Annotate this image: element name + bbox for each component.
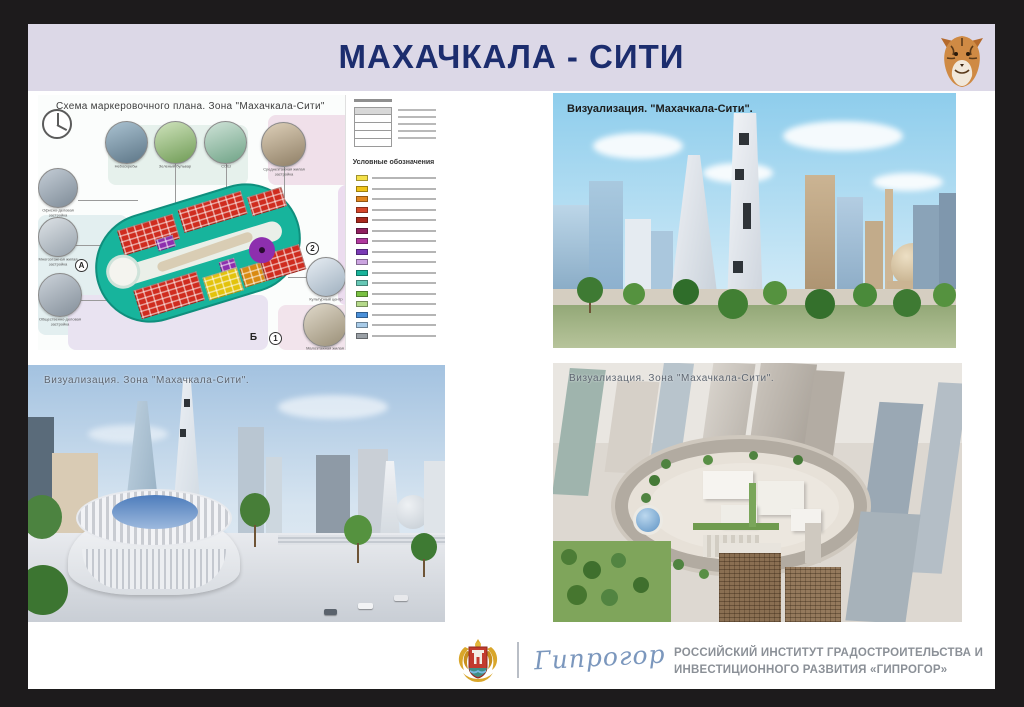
callout-photo-school (204, 121, 247, 164)
skyscraper-window (743, 203, 751, 229)
red-block-cluster (178, 191, 248, 233)
park-tree (611, 553, 626, 568)
skyscraper-window (735, 169, 744, 180)
tree-trunk (254, 525, 256, 547)
tree (411, 533, 437, 561)
park-tree (633, 577, 649, 593)
marker-A: А (75, 259, 88, 272)
tower-window (184, 399, 190, 407)
scheme-title: Схема маркеровочного плана. Зона "Махачк… (56, 101, 325, 112)
tree (344, 515, 372, 545)
brown-tower (719, 551, 781, 622)
callout-label: Малоэтажная жилая застройка (302, 347, 348, 350)
legend-panel: Условные обозначения (345, 95, 440, 350)
marker-2: 2 (306, 242, 319, 255)
callout-photo-skyscrapers (105, 121, 148, 164)
tiger-logo-icon (933, 30, 991, 90)
roundabout (102, 250, 144, 292)
callout-photo-highrise-housing (38, 217, 78, 257)
legend-row (356, 257, 436, 268)
marker-1: 1 (269, 332, 282, 345)
legend-row (356, 236, 436, 247)
callout-photo-offices (38, 168, 78, 208)
blue-dome-building (633, 505, 663, 535)
header-band: МАХАЧКАЛА - СИТИ (28, 24, 995, 91)
callout-label: Среднеэтажная жилая застройка (261, 168, 307, 177)
red-block-cluster (247, 187, 287, 217)
car (358, 603, 373, 609)
callout-photo-public-buildings (38, 273, 82, 317)
tree (641, 493, 651, 503)
callout-label: Общественно-деловая застройка (38, 318, 83, 327)
callout-label: Небоскребы (103, 165, 149, 169)
green-strip (749, 483, 756, 527)
cloud (278, 395, 388, 419)
viz-zone-right-title: Визуализация. Зона "Махачкала-Сити". (569, 373, 774, 384)
mid-tower-small (266, 457, 282, 537)
legend-row (356, 215, 436, 226)
park-tree (583, 561, 601, 579)
callout-line (175, 164, 176, 204)
tree (623, 283, 645, 305)
car (394, 595, 408, 601)
legend-row (356, 299, 436, 310)
viz-zone-left-title: Визуализация. Зона "Махачкала-Сити". (44, 375, 249, 386)
legend-row (356, 278, 436, 289)
legend-row (356, 331, 436, 342)
tree-trunk (423, 559, 425, 577)
tree (673, 279, 699, 305)
legend-table (354, 107, 392, 147)
park-tree (561, 549, 577, 565)
legend-row (356, 247, 436, 258)
tree (933, 283, 956, 307)
footer-divider (517, 642, 519, 678)
viz-main-panel: Визуализация. "Махачкала-Сити". (553, 93, 956, 348)
tree (673, 559, 684, 570)
callout-photo-cultural-center (306, 257, 346, 297)
legend-row (356, 289, 436, 300)
viz-zone-left-panel: Визуализация. Зона "Махачкала-Сити". (28, 365, 445, 622)
callout-photo-lowrise-housing (303, 303, 347, 347)
cloud (88, 425, 168, 443)
tree (763, 281, 787, 305)
institute-name: РОССИЙСКИЙ ИНСТИТУТ ГРАДОСТРОИТЕЛЬСТВА И… (674, 645, 983, 678)
tree (793, 455, 803, 465)
tree (703, 455, 713, 465)
marker-B: Б (247, 332, 260, 345)
skyscraper-window (733, 261, 743, 273)
brown-tower-roof (719, 543, 781, 553)
legend-row (356, 173, 436, 184)
yellow-block-cluster (202, 267, 243, 300)
page-title: МАХАЧКАЛА - СИТИ (28, 38, 995, 76)
legend-row (356, 226, 436, 237)
viz-zone-right-panel: Визуализация. Зона "Махачкала-Сити". (553, 363, 962, 622)
tree (661, 459, 671, 469)
giprogor-script-logo: Гипрогор (533, 640, 664, 676)
presentation-slide: МАХАЧКАЛА - СИТИ Схема маркеровочного пл… (28, 24, 995, 689)
footer: Гипрогор РОССИЙСКИЙ ИНСТИТУТ ГРАДОСТРОИТ… (28, 629, 995, 689)
cloud (783, 121, 903, 151)
tree (577, 277, 603, 303)
viz-main-title: Визуализация. "Махачкала-Сити". (567, 103, 753, 115)
tree (749, 451, 758, 460)
round-arena-building (68, 483, 240, 595)
legend-row (356, 268, 436, 279)
tree (718, 289, 748, 319)
callout-label: Зеленый бульвар (152, 165, 198, 169)
callout-photo-midrise (261, 122, 306, 167)
institute-name-line2: ИНВЕСТИЦИОННОГО РАЗВИТИЯ «ГИПРОГОР» (674, 662, 983, 679)
legend-row (356, 310, 436, 321)
cloud (873, 173, 943, 191)
car (324, 609, 337, 615)
legend-row (356, 205, 436, 216)
callout-photo-green-boulevard (154, 121, 197, 164)
tree (893, 289, 921, 317)
tree (240, 493, 270, 527)
tree-trunk (357, 543, 359, 563)
legend-row (356, 184, 436, 195)
brown-tower (785, 567, 841, 622)
tree (853, 283, 877, 307)
legend-row (356, 194, 436, 205)
park-tree (567, 585, 587, 605)
white-pavilion (703, 471, 753, 499)
legend-table-caption-placeholder (354, 99, 392, 102)
cloud (593, 133, 683, 159)
skyscraper-window (739, 133, 749, 145)
green-strip (693, 523, 779, 530)
park-tree (601, 589, 618, 606)
tree (649, 475, 660, 486)
north-compass-icon (42, 109, 72, 139)
legend-title: Условные обозначения (346, 159, 440, 166)
callout-label: Культурный центр (303, 298, 349, 302)
makhachkala-coat-of-arms-icon (455, 637, 501, 683)
legend-row (356, 320, 436, 331)
callout-label: СОШ (203, 165, 249, 169)
tree (699, 569, 709, 579)
tower-window (180, 429, 186, 437)
callout-line (78, 200, 138, 201)
tree (805, 289, 835, 319)
legend-notes-placeholder (398, 109, 436, 144)
institute-name-line1: РОССИЙСКИЙ ИНСТИТУТ ГРАДОСТРОИТЕЛЬСТВА И (674, 645, 983, 662)
scheme-panel: Схема маркеровочного плана. Зона "Махачк… (38, 95, 440, 350)
tower-on-plaza (805, 523, 821, 563)
far-right-block (424, 461, 445, 537)
legend-rows (356, 173, 436, 341)
